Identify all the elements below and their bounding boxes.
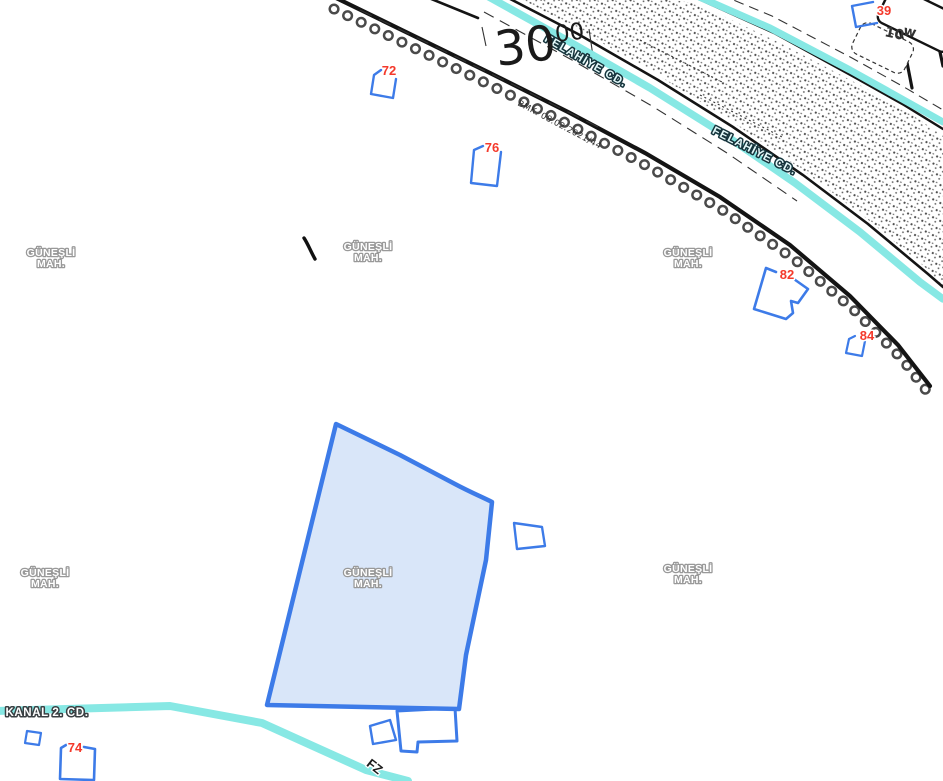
- svg-text:GÜNEŞLİMAH.: GÜNEŞLİMAH.: [664, 246, 713, 270]
- ink-mark: [304, 238, 315, 259]
- cadastral-map: GÜNEŞLİMAH. GÜNEŞLİMAH. GÜNEŞLİMAH. GÜNE…: [0, 0, 943, 781]
- svg-text:GÜNEŞLİMAH.: GÜNEŞLİMAH.: [664, 562, 713, 586]
- neighborhood-line2: MAH.: [37, 258, 65, 270]
- neighborhood-line2: MAH.: [31, 578, 59, 590]
- map-canvas[interactable]: GÜNEŞLİMAH. GÜNEŞLİMAH. GÜNEŞLİMAH. GÜNE…: [0, 0, 943, 781]
- neighborhood-label: GÜNEŞLİMAH.: [664, 246, 713, 270]
- svg-text:GÜNEŞLİMAH.: GÜNEŞLİMAH.: [27, 246, 76, 270]
- neighborhood-line2: MAH.: [674, 574, 702, 586]
- parcel-number-39[interactable]: 39: [877, 3, 891, 18]
- street-label-kanal: KANAL 2. CD.: [5, 707, 88, 719]
- svg-text:GÜNEŞLİMAH.: GÜNEŞLİMAH.: [344, 240, 393, 264]
- neighborhood-label: GÜNEŞLİMAH.: [344, 240, 393, 264]
- parcel-number-74[interactable]: 74: [68, 740, 83, 755]
- small-parcel-outline-east[interactable]: [514, 523, 545, 549]
- small-parcel-outline-sw[interactable]: [25, 731, 41, 745]
- neighborhood-label: GÜNEŞLİMAH.: [664, 562, 713, 586]
- parcel-number-76[interactable]: 76: [485, 140, 499, 155]
- block-number: 30: [492, 15, 559, 78]
- neighborhood-label: GÜNEŞLİMAH.: [21, 566, 70, 590]
- parcel-number-84[interactable]: 84: [860, 328, 875, 343]
- road-edge-fragment: [424, 0, 478, 18]
- neighborhood-label: GÜNEŞLİMAH.: [27, 246, 76, 270]
- survey-tick-2: [482, 27, 486, 46]
- building-footprint-large[interactable]: [397, 708, 457, 752]
- neighborhood-line2: MAH.: [674, 258, 702, 270]
- neighborhood-line2: MAH.: [354, 578, 382, 590]
- block-number-superscript: 00: [554, 19, 586, 48]
- building-footprint-small[interactable]: [370, 720, 396, 744]
- svg-text:GÜNEŞLİMAH.: GÜNEŞLİMAH.: [21, 566, 70, 590]
- parcel-number-82[interactable]: 82: [780, 267, 794, 282]
- parcel-number-72[interactable]: 72: [382, 63, 396, 78]
- neighborhood-line2: MAH.: [354, 252, 382, 264]
